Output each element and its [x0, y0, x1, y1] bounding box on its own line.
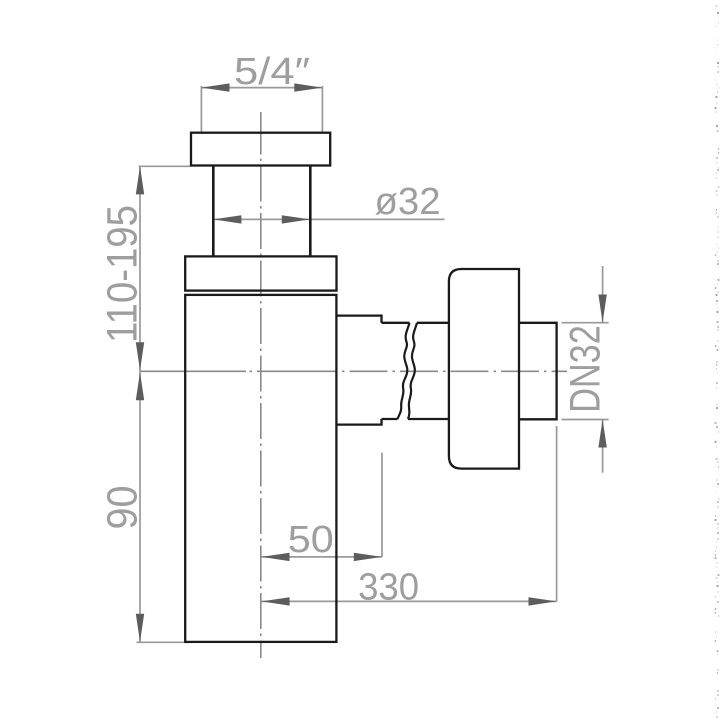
svg-text:90: 90	[97, 486, 146, 530]
svg-text:5/4″: 5/4″	[234, 51, 310, 93]
svg-text:ø32: ø32	[375, 181, 441, 223]
svg-text:50: 50	[288, 519, 334, 561]
svg-text:330: 330	[358, 567, 419, 609]
svg-text:DN32: DN32	[560, 325, 609, 413]
svg-text:110-195: 110-195	[97, 205, 146, 343]
